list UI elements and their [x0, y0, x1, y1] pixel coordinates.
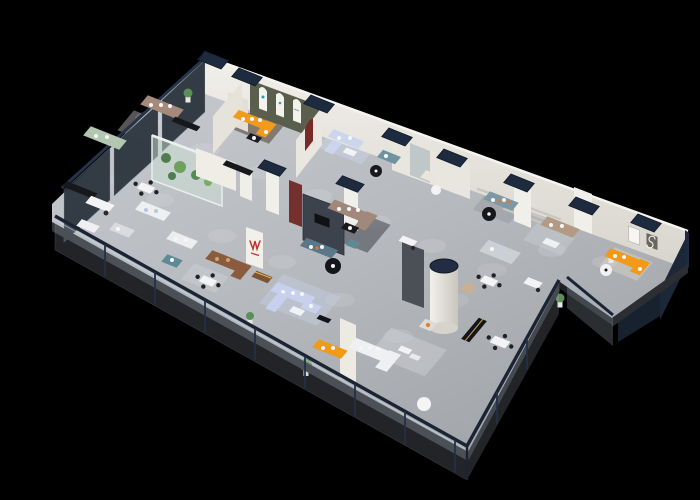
- sofa-white-left-cushion-2: [184, 238, 188, 242]
- sofa-periwinkle-b-a-cushion-2: [291, 291, 295, 295]
- table-arch-room-cushion-1: [252, 136, 256, 140]
- dining-set-left-1-chair-2: [133, 182, 137, 186]
- arch-niche-3: [293, 99, 301, 123]
- dining-set-right-1-chair-4: [491, 273, 495, 277]
- sofa-tan-right-cushion-1: [549, 223, 553, 227]
- annex-navy-edge: [685, 230, 689, 268]
- dining-set-left-2-chair-2: [195, 275, 199, 279]
- column-center-1: [266, 170, 279, 215]
- sofa-blue-right-cushion-1: [491, 198, 495, 202]
- sofa-orange-annex-a-cushion-2: [622, 255, 626, 259]
- arch-logo-2: [279, 102, 282, 105]
- sofa-gray-left-cushion-1: [116, 227, 120, 231]
- dining-set-left-1-chair-3: [139, 191, 143, 195]
- arch-logo-1: [262, 96, 265, 99]
- sofa-orange-arch-a-cushion-1: [241, 117, 245, 121]
- dining-set-left-1-chair-1: [154, 190, 158, 194]
- sofa-white-sect-a-cushion-3: [376, 347, 380, 351]
- sofa-blue-right-cushion-4: [507, 200, 510, 203]
- sofa-orange-arch-b-cushion-1: [264, 130, 268, 134]
- table-white-1: [431, 185, 441, 195]
- light-pool-11: [268, 255, 296, 269]
- table-round-3-decor: [331, 264, 335, 268]
- sofa-orange-bottom-cushion-2: [331, 346, 335, 350]
- plant-mid: [246, 312, 254, 320]
- logo-column: [246, 227, 263, 269]
- sofa-sage-cushion-1: [94, 134, 98, 138]
- cylinder-body: [430, 266, 458, 328]
- sofa-taupe-top-cushion-1: [149, 103, 153, 107]
- armchair-orange-trim-cushion-1: [426, 323, 430, 327]
- chair-swivel: [417, 397, 431, 411]
- sofa-tan-right-cushion-2: [560, 224, 564, 228]
- sofa-leather-a-cushion-2: [226, 258, 230, 262]
- sofa-leather-a-cushion-1: [215, 257, 219, 261]
- sofa-brown-a-cushion-2: [347, 207, 351, 211]
- dining-set-right-1-chair-1: [497, 283, 501, 287]
- sofa-periwinkle-top-a-cushion-2: [348, 136, 352, 140]
- table-round-2-decor: [487, 212, 491, 216]
- showroom-render-stage: [0, 0, 700, 500]
- dining-set-left-2-chair-3: [201, 284, 205, 288]
- dark-wall-cylinder: [402, 242, 424, 308]
- table-annex-decor: [605, 269, 608, 272]
- sofa-white-left-cushion-1: [174, 237, 178, 241]
- cylinder-top: [430, 259, 458, 273]
- dining-set-left-1-chair-4: [148, 180, 152, 184]
- sofa-orange-bottom-cushion-1: [321, 346, 325, 350]
- chair-left-a: [104, 211, 109, 216]
- sofa-gray-right-cushion-1: [490, 247, 494, 251]
- sofa-white-sect-a-cushion-2: [368, 346, 372, 350]
- sofa-white-mid-cushion-1: [144, 208, 148, 212]
- sofa-orange-arch-a-cushion-2: [250, 117, 254, 121]
- light-pool-10: [208, 229, 236, 243]
- arch-niche-2: [276, 93, 284, 117]
- dining-set-right-2-chair-2: [487, 335, 491, 339]
- dining-set-right-2-chair-4: [503, 334, 507, 338]
- terrarium-plant-5: [168, 172, 176, 180]
- sofa-periwinkle-b-a-cushion-3: [300, 292, 304, 296]
- sofa-slate-cushion-2: [320, 245, 324, 249]
- sofa-orange-arch-a-cushion-3: [258, 118, 262, 122]
- chair-top: [411, 246, 415, 250]
- chair-right: [536, 288, 540, 292]
- sofa-gray-right-cushion-2: [500, 248, 504, 252]
- table-center-cushion-1: [348, 226, 352, 230]
- sofa-periwinkle-b-c-cushion-1: [309, 304, 313, 308]
- dining-set-left-2-chair-1: [216, 283, 220, 287]
- sofa-taupe-top-cushion-2: [159, 103, 163, 107]
- terrarium-plant-1: [161, 153, 171, 163]
- sofa-brown-a-cushion-1: [337, 207, 341, 211]
- dining-set-right-1-chair-3: [482, 284, 486, 288]
- sofa-slate-cushion-3: [315, 246, 318, 249]
- sofa-taupe-top-cushion-3: [168, 104, 172, 108]
- terrarium-plant-2: [174, 161, 186, 173]
- sofa-orange-annex-a-cushion-1: [613, 254, 617, 258]
- sofa-blue-right-cushion-3: [497, 199, 500, 202]
- maroon-accent-panel: [289, 180, 302, 227]
- sofa-white-mid-cushion-2: [154, 209, 158, 213]
- dining-set-right-1-chair-2: [476, 275, 480, 279]
- sofa-slate-cushion-1: [309, 245, 313, 249]
- dining-set-right-2-chair-3: [493, 346, 497, 350]
- plant-wall: [184, 89, 193, 98]
- table-round-1-decor: [375, 170, 378, 173]
- sofa-white-sect-a-cushion-1: [359, 346, 363, 350]
- sofa-orange-annex-b-cushion-1: [638, 267, 642, 271]
- sofa-teal-small-cushion-1: [170, 258, 174, 262]
- dining-set-right-2-chair-1: [509, 344, 513, 348]
- loveseat-teal-cushion-1: [384, 154, 388, 158]
- arch-niche-1: [259, 87, 267, 111]
- dining-set-left-2-chair-4: [210, 273, 214, 277]
- isometric-floorplan-render: [0, 0, 700, 500]
- sofa-blue-right-cushion-2: [502, 198, 506, 202]
- sofa-periwinkle-top-a-cushion-1: [337, 136, 341, 140]
- sofa-sage-cushion-2: [105, 135, 109, 139]
- sofa-brown-a-cushion-3: [356, 208, 360, 212]
